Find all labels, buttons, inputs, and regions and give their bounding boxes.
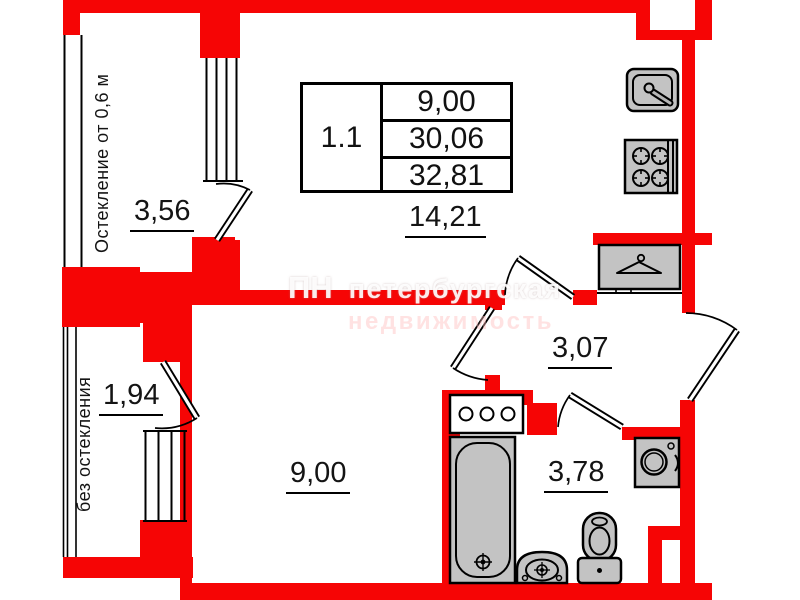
- living-area-value: 9,00: [383, 85, 510, 119]
- wardrobe-icon: [597, 245, 682, 293]
- area-table: 9,00 30,06 32,81: [383, 85, 510, 190]
- toilet-icon: [578, 513, 621, 583]
- door-swing-icon: [505, 258, 573, 297]
- glazing-note-bottom: без остекления: [74, 377, 95, 512]
- window-icon: [203, 58, 243, 181]
- door-swing-icon: [558, 395, 622, 427]
- washbasin-icon: [517, 552, 567, 583]
- door-swing-icon: [453, 308, 492, 380]
- area-label-balcony-bottom: 1,94: [99, 380, 163, 416]
- stove-icon: [625, 140, 677, 193]
- area-label-balcony-top: 3,56: [130, 196, 194, 232]
- washing-machine-icon: [635, 438, 679, 487]
- area-label-bathroom: 3,78: [544, 457, 608, 493]
- glazing-note-top: Остекление от 0,6 м: [92, 74, 113, 253]
- unit-number: 1.1: [303, 85, 383, 190]
- entrance-door-swing-icon: [686, 313, 737, 400]
- bathtub-icon: [450, 437, 515, 583]
- apartment-area-value: 30,06: [383, 119, 510, 156]
- floor-plan: 1.1 9,00 30,06 32,81 3,56 14,21 9,00 3,0…: [0, 0, 800, 600]
- area-label-bedroom: 9,00: [286, 458, 350, 494]
- area-label-hall: 3,07: [548, 333, 612, 369]
- area-label-main-room: 14,21: [405, 202, 486, 238]
- door-swing-icon: [216, 183, 250, 240]
- total-area-value: 32,81: [383, 156, 510, 193]
- title-block: 1.1 9,00 30,06 32,81: [300, 82, 513, 193]
- glazing-lines-icon: [65, 35, 82, 267]
- bath-vanity-icon: [450, 395, 523, 433]
- kitchen-sink-icon: [627, 69, 678, 111]
- window-icon: [143, 431, 187, 521]
